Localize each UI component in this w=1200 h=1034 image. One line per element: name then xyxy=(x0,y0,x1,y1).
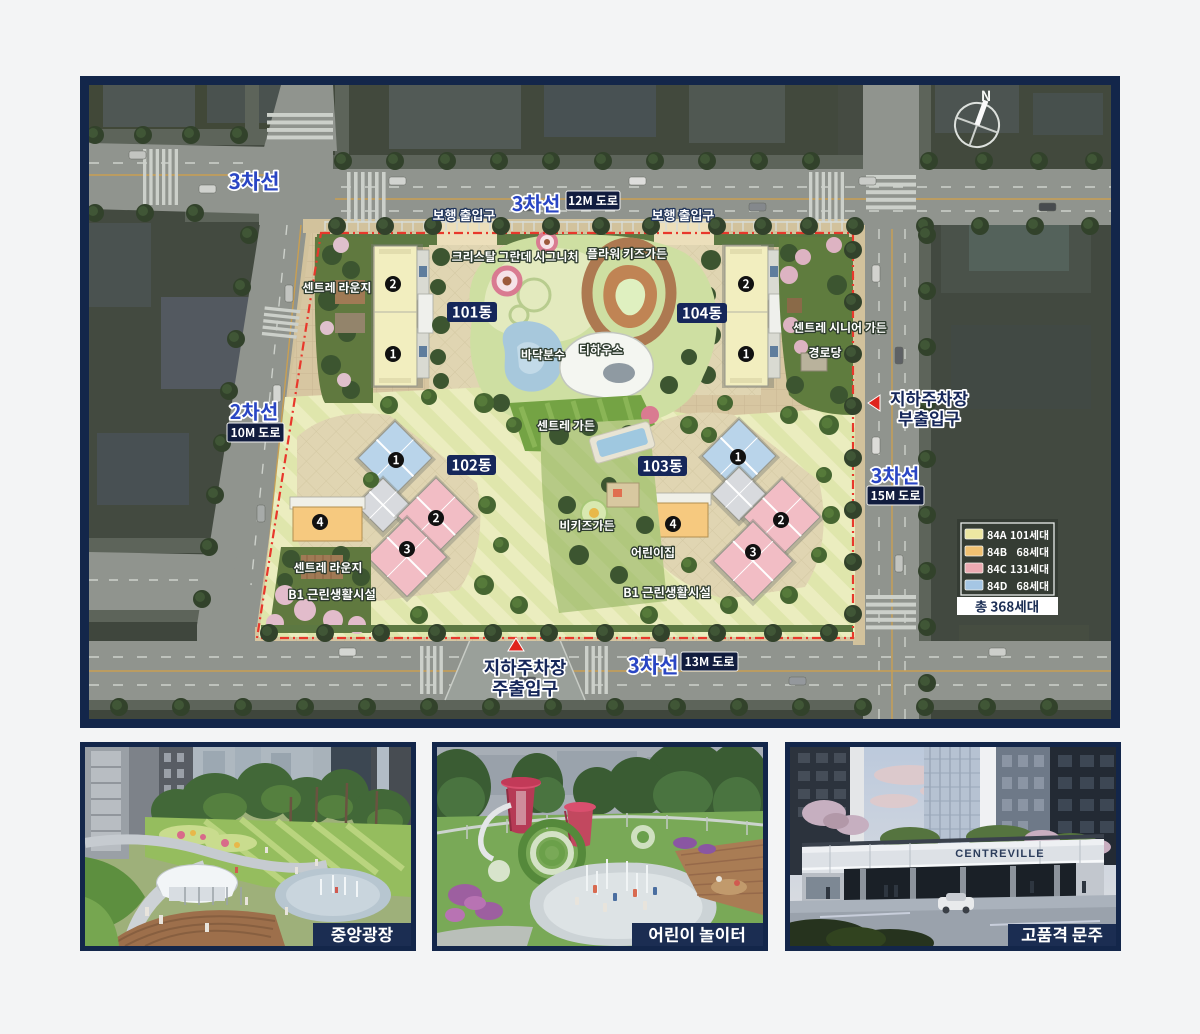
svg-text:CENTREVILLE: CENTREVILLE xyxy=(955,848,1045,860)
